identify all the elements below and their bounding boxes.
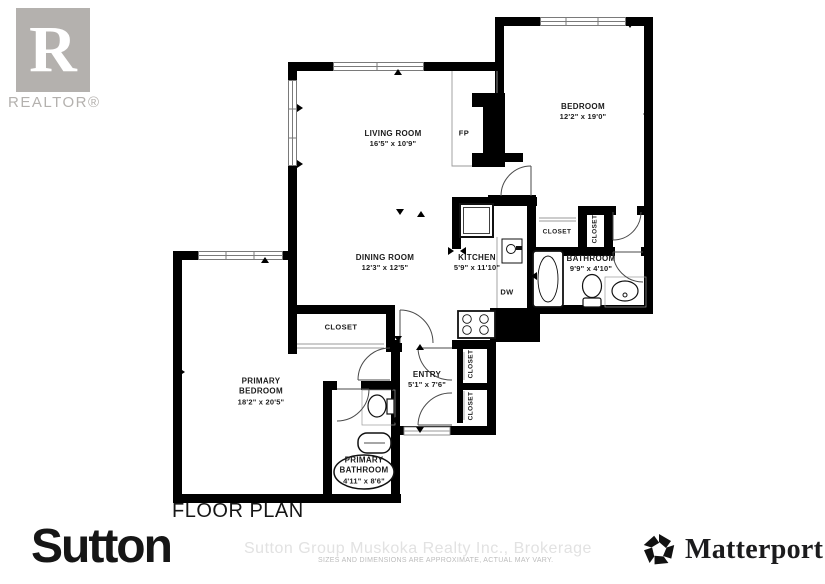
page-title: FLOOR PLAN: [172, 500, 304, 523]
room-label-kitchen: KITCHEN 5'9" x 11'10": [454, 253, 500, 273]
floor-plan-drawing: [0, 0, 825, 584]
matterport-logo: Matterport®: [642, 533, 825, 567]
fireplace-label: FP: [459, 129, 469, 138]
closet-label-hall: CLOSET: [543, 229, 572, 236]
realtor-logo: R REALTOR®: [8, 8, 118, 111]
closet-label-entry-top: CLOSET: [468, 350, 475, 379]
kitchen-sink-icon: [502, 239, 522, 263]
realtor-logo-text: REALTOR®: [8, 94, 118, 111]
primary-toilet-icon: [368, 395, 394, 417]
closet-label-hall-vertical: CLOSET: [592, 215, 599, 244]
fireplace-icon: [472, 93, 523, 167]
dishwasher-label: DW: [500, 288, 513, 297]
room-label-primary-bathroom: PRIMARY BATHROOM 4'11" x 8'6": [333, 456, 395, 487]
room-label-bedroom: BEDROOM 12'2" x 19'0": [560, 102, 607, 122]
bathtub-icon: [533, 251, 563, 307]
watermark-disclaimer: SIZES AND DIMENSIONS ARE APPROXIMATE, AC…: [318, 557, 553, 564]
room-label-primary-bedroom: PRIMARY BEDROOM 18'2" x 20'5": [229, 377, 293, 408]
watermark-brokerage: Sutton Group Muskoka Realty Inc., Broker…: [244, 540, 592, 558]
floor-plan-page: LIVING ROOM 16'5" x 10'9" BEDROOM 12'2" …: [0, 0, 825, 584]
closet-label-dining: CLOSET: [325, 323, 358, 332]
room-label-bathroom: BATHROOM 9'9" x 4'10": [567, 254, 616, 274]
toilet-icon: [583, 275, 602, 308]
stove-icon: [458, 311, 495, 338]
room-label-dining-room: DINING ROOM 12'3" x 12'5": [356, 253, 414, 273]
matterport-logo-text: Matterport: [685, 536, 823, 564]
matterport-icon: [642, 533, 676, 567]
sutton-logo: Sutton: [31, 519, 171, 574]
room-label-living-room: LIVING ROOM 16'5" x 10'9": [364, 129, 421, 149]
bathroom-sink-icon: [612, 281, 638, 301]
realtor-r-icon: R: [16, 8, 90, 92]
closet-label-entry-bottom: CLOSET: [468, 392, 475, 421]
room-label-entry: ENTRY 5'1" x 7'6": [408, 370, 446, 390]
fridge-icon: [460, 204, 493, 237]
primary-shower-icon: [358, 433, 391, 453]
